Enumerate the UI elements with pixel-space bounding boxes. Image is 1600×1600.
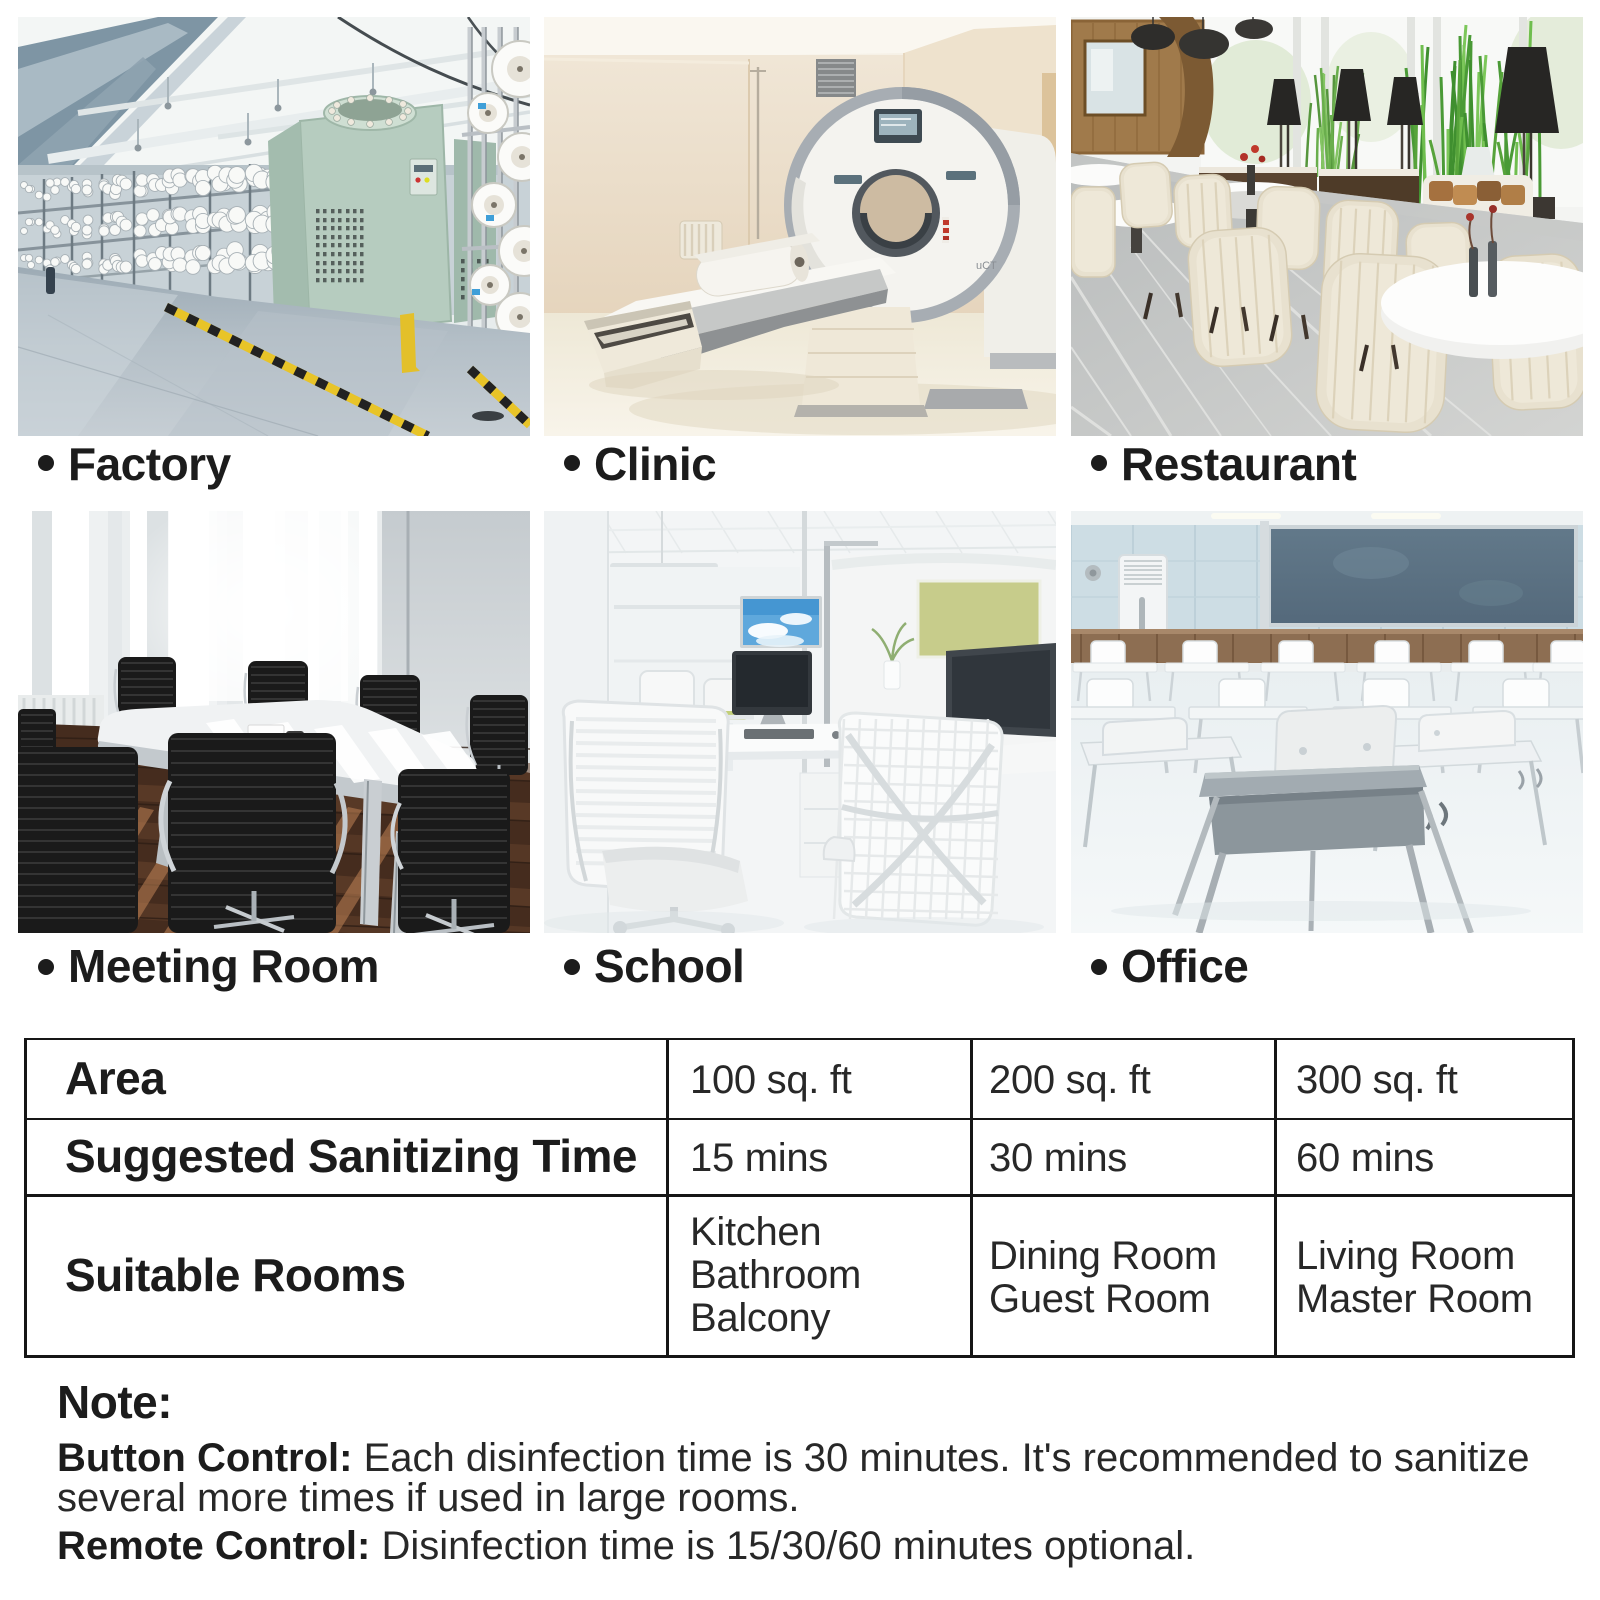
svg-text:uCT: uCT — [976, 260, 997, 272]
